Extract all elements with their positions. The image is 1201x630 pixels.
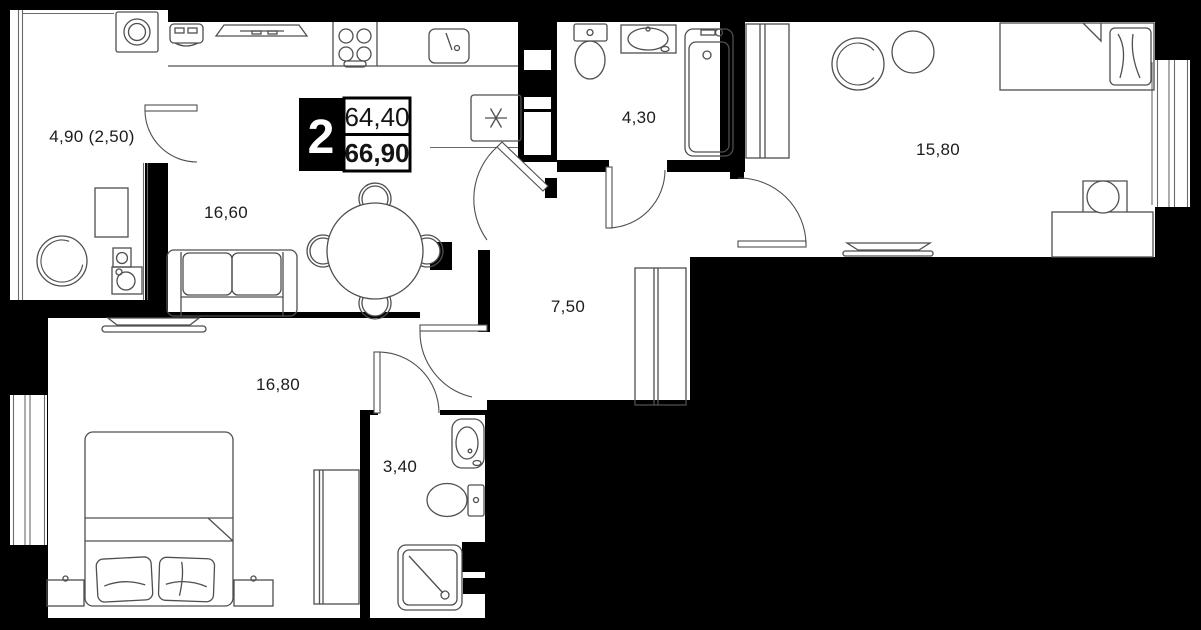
vent-shaft-slot bbox=[524, 50, 551, 70]
desk-icon bbox=[1052, 212, 1153, 257]
floorplan-page: 4,90 (2,50) 16,60 4,30 15,80 7,50 16,80 … bbox=[0, 0, 1201, 630]
bedroom-right-door-jamb bbox=[730, 150, 744, 179]
badge-rooms-count: 2 bbox=[308, 111, 335, 164]
area-label-bedroom-right: 15,80 bbox=[916, 140, 960, 159]
dining-table-icon bbox=[327, 203, 423, 299]
area-label-bedroom-left: 16,80 bbox=[256, 375, 300, 394]
room-bathroom bbox=[557, 22, 720, 160]
badge-total-area: 64,40 bbox=[344, 102, 409, 132]
area-label-loggia: 4,90 (2,50) bbox=[49, 127, 135, 146]
area-label-kitchen-living: 16,60 bbox=[204, 203, 248, 222]
floorplan-svg: 4,90 (2,50) 16,60 4,30 15,80 7,50 16,80 … bbox=[0, 0, 1201, 630]
vent-shaft-slot bbox=[524, 112, 551, 155]
apartment-badge: 2 64,40 66,90 bbox=[299, 98, 410, 171]
washing-machine-icon bbox=[116, 12, 158, 52]
opening-wc-door bbox=[378, 408, 440, 415]
vent-shaft-slot bbox=[524, 97, 551, 109]
window-left-glass bbox=[10, 395, 47, 545]
room-kitchen-fridge-nook bbox=[490, 22, 520, 148]
opening-bedroom-left-door bbox=[420, 310, 482, 318]
badge-living-area: 66,90 bbox=[344, 138, 409, 168]
opening-bathroom-door bbox=[609, 158, 667, 172]
area-label-wc: 3,40 bbox=[383, 457, 417, 476]
entrance-hinge-wall bbox=[545, 178, 557, 198]
area-label-bathroom: 4,30 bbox=[622, 108, 656, 127]
wc-duct-lower bbox=[463, 578, 485, 594]
window-right-glass bbox=[1155, 60, 1190, 207]
area-label-hallway: 7,50 bbox=[551, 297, 585, 316]
room-loggia bbox=[10, 10, 145, 300]
wc-duct-upper bbox=[462, 542, 485, 572]
